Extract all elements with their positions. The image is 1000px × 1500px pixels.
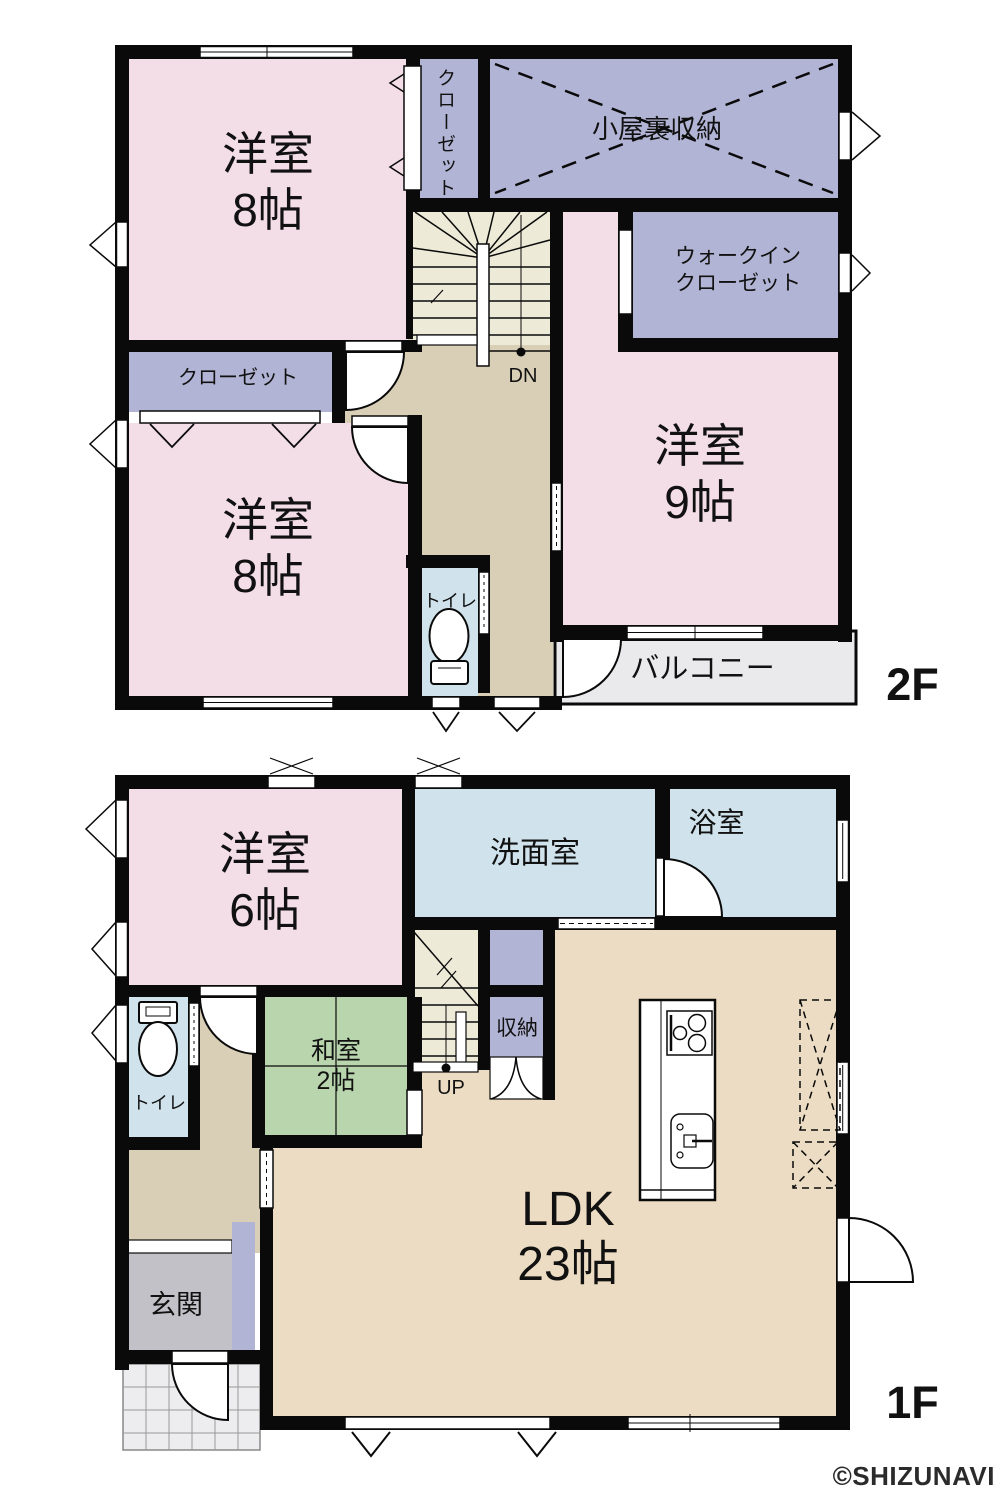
toilet-icon-1f bbox=[139, 1002, 177, 1076]
room-name: バルコニー bbox=[595, 652, 810, 687]
room-size: 8帖 bbox=[158, 182, 378, 238]
room-label-storage: 収納 bbox=[485, 1016, 549, 1042]
room-name: クローゼット bbox=[138, 366, 338, 390]
room-name: 玄関 bbox=[124, 1289, 228, 1322]
room-name: 洋室 bbox=[590, 418, 810, 474]
room-label-western9: 洋室 9帖 bbox=[590, 418, 810, 530]
storage-upper bbox=[490, 930, 543, 985]
stairs-direction: DN bbox=[498, 364, 548, 388]
room-name: クローゼット bbox=[433, 68, 456, 194]
shoe-cabinet bbox=[232, 1222, 255, 1350]
room-name-line2: クローゼット bbox=[628, 270, 848, 297]
floor-label-text: 2F bbox=[870, 658, 955, 713]
room-name: 洋室 bbox=[158, 492, 378, 548]
room-label-wic: ウォークイン クローゼット bbox=[628, 243, 848, 298]
room-label-western6: 洋室 6帖 bbox=[155, 826, 375, 938]
room-name: トイレ bbox=[122, 1093, 196, 1115]
room-name-line1: ウォークイン bbox=[628, 243, 848, 270]
room-size: 9帖 bbox=[590, 474, 810, 530]
floor2-label: 2F bbox=[870, 658, 955, 713]
room-name: 和室 bbox=[274, 1036, 398, 1066]
watermark: ©SHIZUNAVI bbox=[690, 1461, 995, 1493]
room-label-entrance: 玄関 bbox=[124, 1289, 228, 1322]
room-label-ldk: LDK 23帖 bbox=[458, 1182, 678, 1292]
stairs-dn-label: DN bbox=[498, 364, 548, 388]
toilet-icon-2f bbox=[430, 609, 469, 684]
room-name: トイレ bbox=[414, 591, 486, 613]
stairs-direction: UP bbox=[426, 1076, 476, 1100]
room-name: 洋室 bbox=[155, 826, 375, 882]
room-label-closet-mid: クローゼット bbox=[138, 366, 338, 390]
room-label-closet-top: クローゼット bbox=[433, 68, 456, 194]
room-label-toilet-2f: トイレ bbox=[414, 591, 486, 613]
room-size: 8帖 bbox=[158, 548, 378, 604]
entrance-step bbox=[128, 1240, 232, 1253]
kitchen-island bbox=[640, 1000, 715, 1200]
room-name: 洗面室 bbox=[425, 836, 645, 873]
floor-label-text: 1F bbox=[870, 1376, 955, 1431]
room-western9-strip bbox=[563, 198, 618, 352]
hallway-1f-lower bbox=[128, 1150, 232, 1253]
room-name: 浴室 bbox=[664, 806, 769, 840]
room-label-attic: 小屋裏収納 bbox=[537, 114, 777, 146]
room-label-balcony: バルコニー bbox=[595, 652, 810, 687]
stairs-up-label: UP bbox=[426, 1076, 476, 1100]
floorplan-page: 洋室 8帖 クローゼット 小屋裏収納 ウォークイン クローゼット 洋室 9帖 ク… bbox=[0, 0, 1000, 1500]
room-label-bathroom: 浴室 bbox=[664, 806, 769, 840]
storage-double-door bbox=[490, 1057, 543, 1099]
room-name: 収納 bbox=[485, 1016, 549, 1042]
room-name: LDK bbox=[458, 1182, 678, 1237]
room-name: 洋室 bbox=[158, 126, 378, 182]
floor1-label: 1F bbox=[870, 1376, 955, 1431]
room-size: 6帖 bbox=[155, 882, 375, 938]
room-label-washroom: 洗面室 bbox=[425, 836, 645, 873]
room-name: 小屋裏収納 bbox=[537, 114, 777, 146]
room-label-western8-top: 洋室 8帖 bbox=[158, 126, 378, 238]
room-size: 2帖 bbox=[274, 1066, 398, 1096]
room-label-japanese: 和室 2帖 bbox=[274, 1036, 398, 1096]
room-label-toilet-1f: トイレ bbox=[122, 1093, 196, 1115]
watermark-text: ©SHIZUNAVI bbox=[690, 1461, 995, 1493]
room-label-western8-bottom: 洋室 8帖 bbox=[158, 492, 378, 604]
room-size: 23帖 bbox=[458, 1237, 678, 1292]
